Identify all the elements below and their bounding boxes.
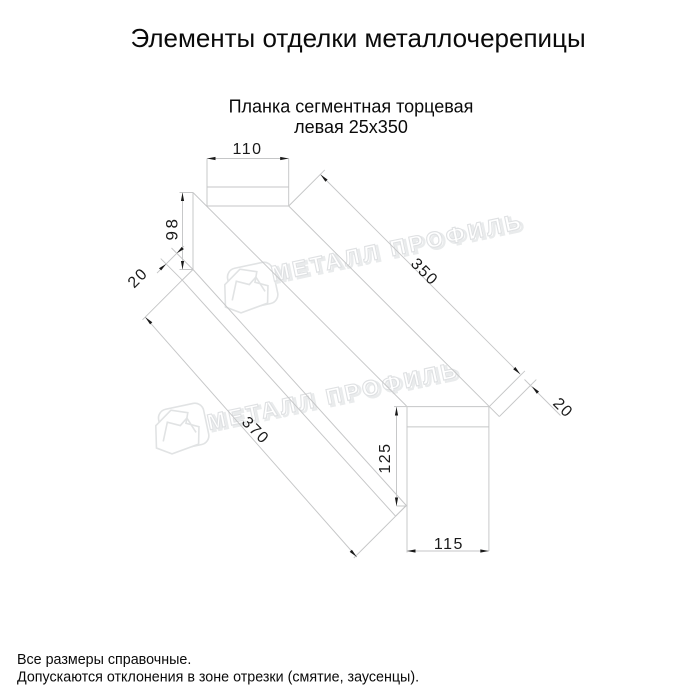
svg-text:110: 110 xyxy=(232,141,262,158)
svg-text:350: 350 xyxy=(407,255,441,289)
svg-text:Элементы отделки металлочерепи: Элементы отделки металлочерепицы xyxy=(131,23,586,53)
svg-text:Планка сегментная торцевая: Планка сегментная торцевая xyxy=(229,97,474,117)
svg-text:МЕТАЛЛ ПРОФИЛЬ: МЕТАЛЛ ПРОФИЛЬ xyxy=(269,208,526,286)
svg-text:Допускаются отклонения в зоне: Допускаются отклонения в зоне отрезки (с… xyxy=(17,670,419,686)
svg-text:левая 25x350: левая 25x350 xyxy=(294,117,408,137)
svg-text:Все размеры справочные.: Все размеры справочные. xyxy=(17,652,191,668)
svg-text:115: 115 xyxy=(434,536,464,553)
svg-text:20: 20 xyxy=(549,395,576,422)
svg-text:125: 125 xyxy=(377,442,394,473)
svg-text:98: 98 xyxy=(163,217,182,241)
svg-text:20: 20 xyxy=(125,265,152,292)
